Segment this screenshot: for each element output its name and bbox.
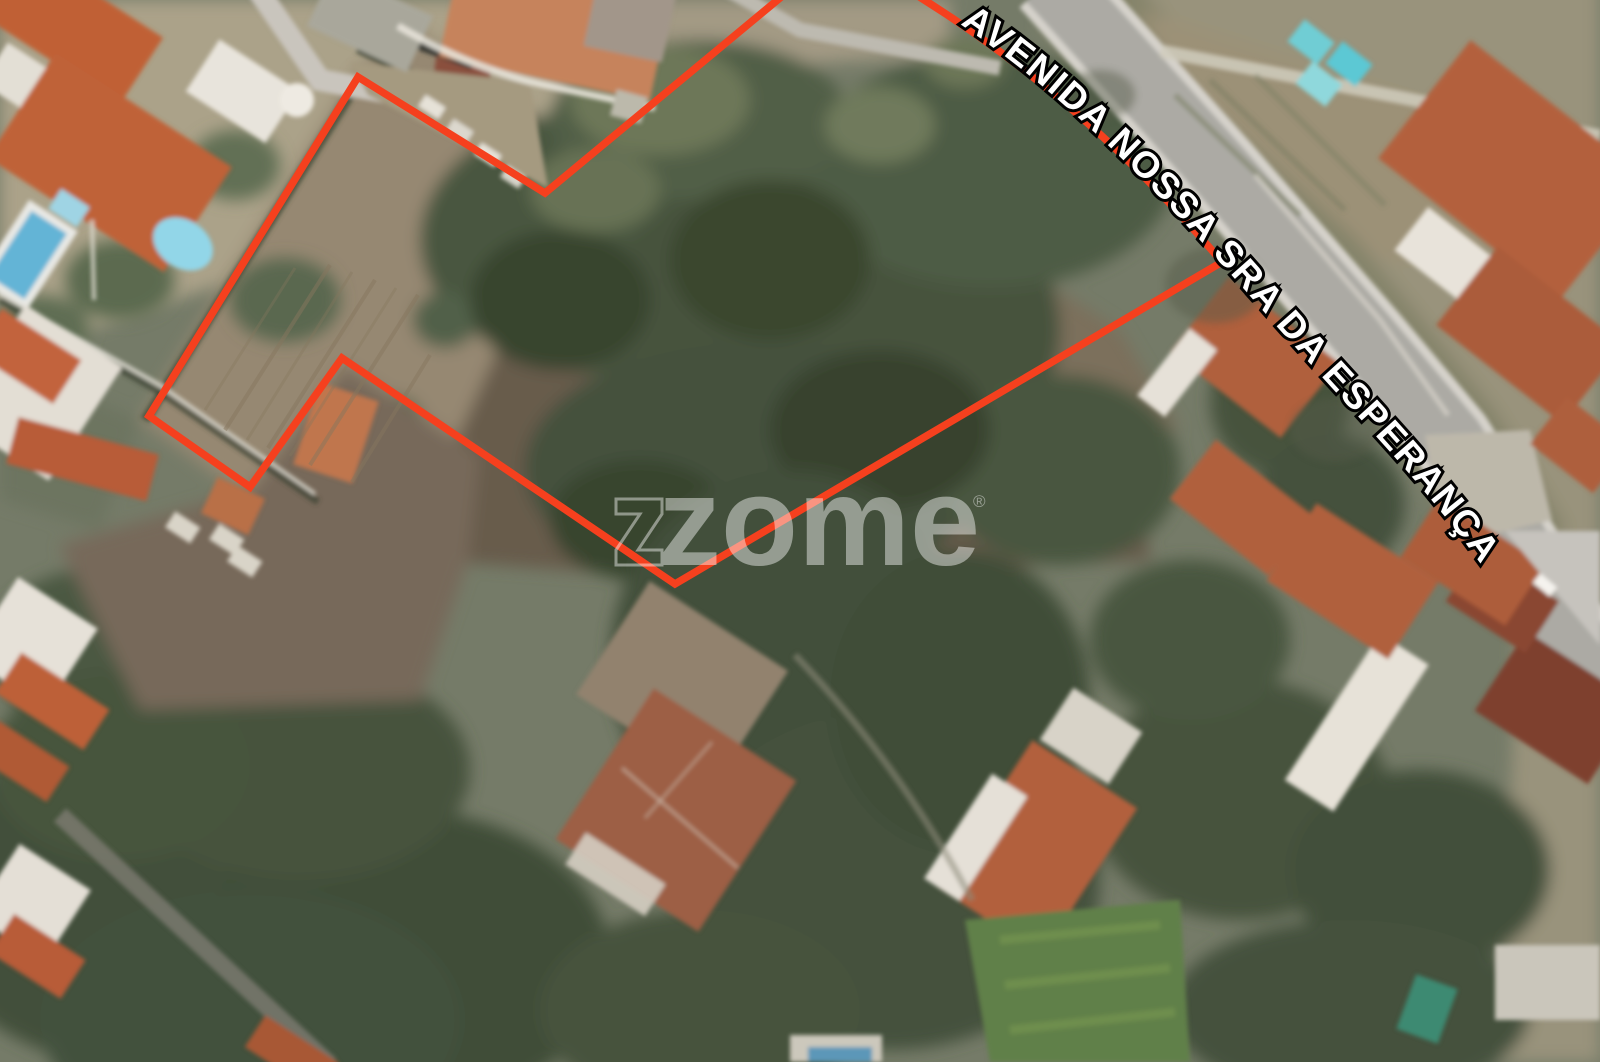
svg-text:zome: zome	[658, 451, 980, 592]
svg-text:®: ®	[973, 492, 986, 511]
